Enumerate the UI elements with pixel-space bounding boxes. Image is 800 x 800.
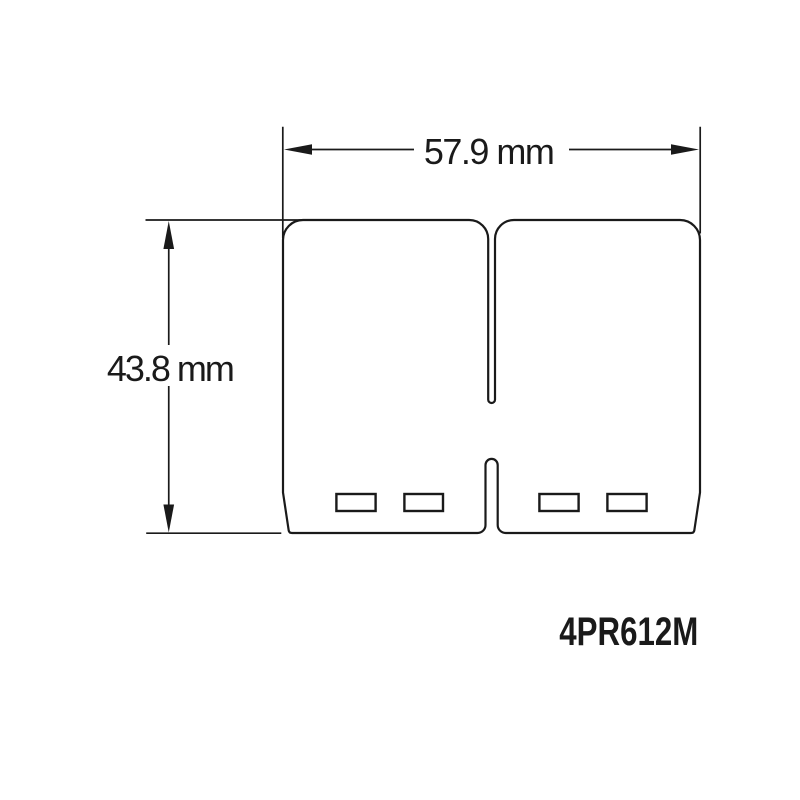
svg-text:4PR612M: 4PR612M — [559, 610, 698, 654]
svg-text:57.9 mm: 57.9 mm — [424, 131, 555, 172]
svg-text:43.8 mm: 43.8 mm — [107, 348, 235, 389]
